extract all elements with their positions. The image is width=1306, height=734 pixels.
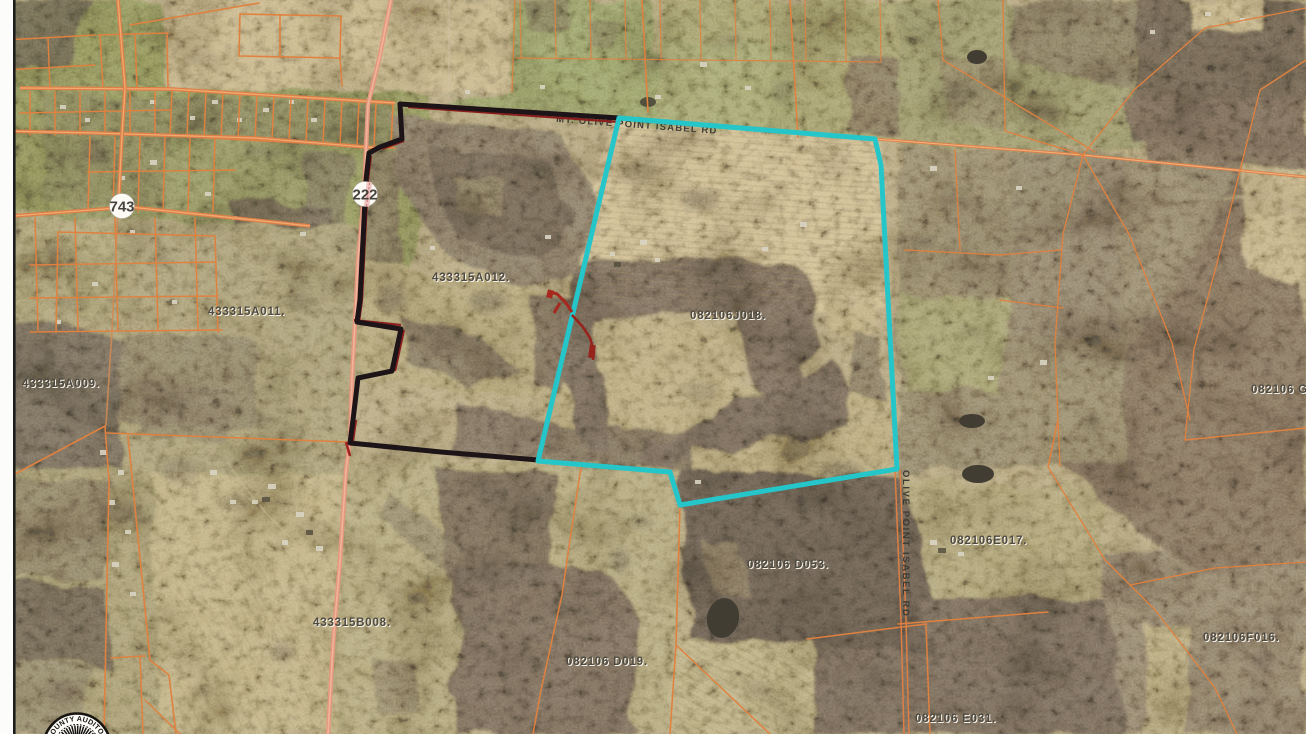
svg-text:082106J018.: 082106J018. <box>690 310 766 322</box>
svg-text:433315A011.: 433315A011. <box>208 306 285 318</box>
svg-text:082106F016.: 082106F016. <box>1203 632 1280 644</box>
svg-text:082106 D019.: 082106 D019. <box>566 656 648 668</box>
svg-text:743: 743 <box>109 199 134 216</box>
svg-text:082106 D053.: 082106 D053. <box>747 559 829 571</box>
svg-text:082106 G: 082106 G <box>1251 384 1306 396</box>
svg-text:433315B008.: 433315B008. <box>313 617 391 629</box>
svg-text:OLIVE POINT ISABEL RD: OLIVE POINT ISABEL RD <box>900 470 911 617</box>
svg-text:082106 E031.: 082106 E031. <box>915 713 996 725</box>
svg-text:222: 222 <box>352 187 377 204</box>
svg-text:082106E017.: 082106E017. <box>950 535 1027 547</box>
svg-text:433315A012.: 433315A012. <box>432 272 510 284</box>
svg-text:433315A009.: 433315A009. <box>22 378 100 390</box>
